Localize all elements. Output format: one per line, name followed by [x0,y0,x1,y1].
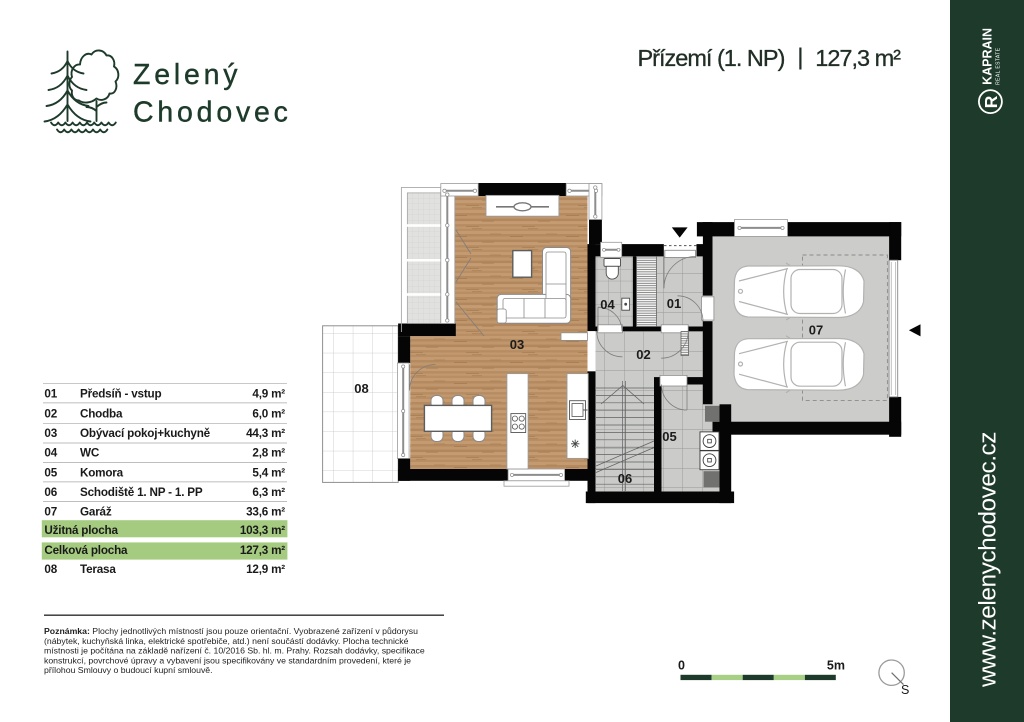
svg-text:Poznámka: Plochy jednotlivých: Poznámka: Plochy jednotlivých místností … [44,626,418,636]
svg-text:2,8 m²: 2,8 m² [252,447,285,460]
svg-text:02: 02 [44,408,57,421]
svg-text:4,9 m²: 4,9 m² [252,388,285,401]
svg-text:Garáž: Garáž [80,506,112,519]
svg-text:05: 05 [662,429,676,444]
svg-text:01: 01 [667,296,681,311]
svg-text:12,9 m²: 12,9 m² [246,563,285,576]
svg-text:05: 05 [44,466,57,479]
svg-text:www.zelenychodovec.cz: www.zelenychodovec.cz [975,432,1002,688]
svg-text:127,3 m²: 127,3 m² [240,544,285,557]
svg-text:(nábytek, kuchyňská linka, ele: (nábytek, kuchyňská linka, elektrické sp… [44,636,409,646]
svg-text:REAL ESTATE: REAL ESTATE [996,47,1002,85]
svg-text:Chodovec: Chodovec [133,97,292,129]
svg-text:Komora: Komora [80,466,124,479]
svg-text:Chodba: Chodba [80,408,123,421]
svg-text:5m: 5m [827,659,845,673]
svg-text:WC: WC [80,447,100,460]
svg-text:04: 04 [44,447,57,460]
svg-text:03: 03 [510,337,524,352]
svg-text:Schodiště 1. NP - 1. PP: Schodiště 1. NP - 1. PP [80,486,203,499]
svg-text:01: 01 [44,388,57,401]
svg-text:33,6 m²: 33,6 m² [246,506,285,519]
svg-text:02: 02 [636,347,650,362]
svg-text:07: 07 [809,323,823,338]
svg-text:08: 08 [44,563,57,576]
svg-text:místnosti je počítána na zákla: místnosti je počítána na základě nařízen… [44,646,425,656]
svg-text:44,3 m²: 44,3 m² [246,427,285,440]
svg-text:S: S [901,683,909,697]
svg-text:Obývací pokoj+kuchyně: Obývací pokoj+kuchyně [80,427,211,440]
svg-text:KAPRAIN: KAPRAIN [981,28,995,85]
svg-text:Přízemí (1. NP): Přízemí (1. NP) [638,45,785,71]
svg-text:Zelený: Zelený [133,59,241,91]
svg-text:127,3 m²: 127,3 m² [815,45,901,71]
svg-text:0: 0 [678,659,685,673]
svg-text:06: 06 [44,486,57,499]
svg-text:6,0 m²: 6,0 m² [252,408,285,421]
svg-text:Celková plocha: Celková plocha [44,544,128,557]
svg-text:Předsíň - vstup: Předsíň - vstup [80,388,161,401]
svg-text:Terasa: Terasa [80,563,116,576]
svg-text:R: R [981,95,1001,108]
svg-text:5,4 m²: 5,4 m² [252,466,285,479]
svg-text:08: 08 [354,381,368,396]
svg-text:06: 06 [618,471,632,486]
svg-text:Užitná plocha: Užitná plocha [44,524,118,537]
svg-text:konstrukcí, povrchové úpravy a: konstrukcí, povrchové úpravy a vybavení … [44,655,411,665]
svg-text:přílohou Smlouvy o budoucí kup: přílohou Smlouvy o budoucí kupní smlouvě… [44,665,213,675]
svg-text:04: 04 [600,297,615,312]
svg-text:6,3 m²: 6,3 m² [252,486,285,499]
svg-text:103,3 m²: 103,3 m² [240,524,285,537]
svg-text:03: 03 [44,427,57,440]
svg-text:07: 07 [44,506,57,519]
